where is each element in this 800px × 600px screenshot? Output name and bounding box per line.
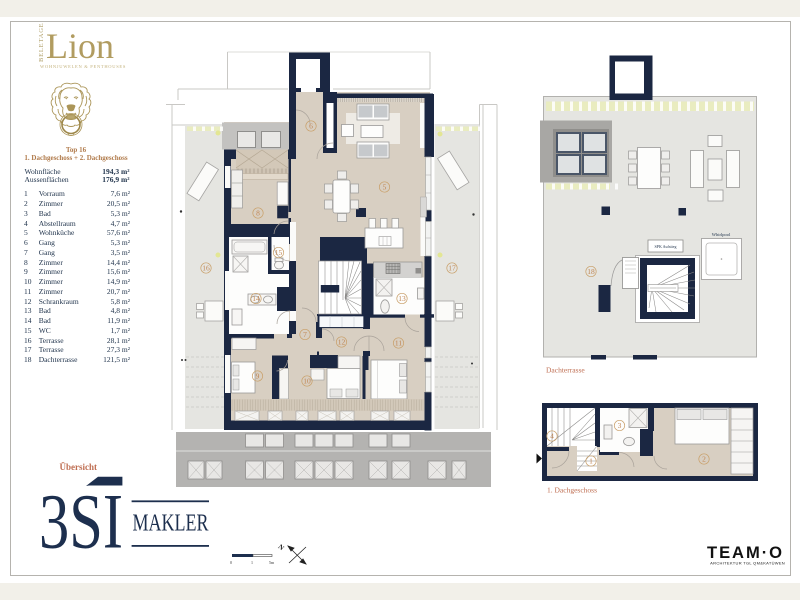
svg-text:3: 3 <box>618 421 622 430</box>
svg-text:14: 14 <box>252 294 260 303</box>
svg-text:6: 6 <box>309 122 313 131</box>
svg-text:1: 1 <box>589 457 593 466</box>
svg-text:0: 0 <box>230 560 232 565</box>
svg-text:2: 2 <box>702 455 706 464</box>
svg-text:1: 1 <box>251 560 253 565</box>
svg-text:12: 12 <box>338 338 346 347</box>
svg-text:13: 13 <box>398 294 406 303</box>
svg-text:16: 16 <box>202 264 210 273</box>
svg-text:10: 10 <box>303 377 311 386</box>
svg-text:3SI: 3SI <box>39 478 123 554</box>
svg-text:17: 17 <box>448 264 456 273</box>
svg-text:5: 5 <box>383 183 387 192</box>
svg-text:TEAM·O: TEAM·O <box>707 543 784 562</box>
svg-text:ARCHITEKTUR TGL QM&KATÜWEN: ARCHITEKTUR TGL QM&KATÜWEN <box>710 561 785 566</box>
svg-text:9: 9 <box>256 372 260 381</box>
svg-text:SPK Aufstieg: SPK Aufstieg <box>655 244 677 249</box>
svg-text:MAKLER: MAKLER <box>133 510 209 537</box>
svg-text:11: 11 <box>395 339 402 348</box>
svg-text:4: 4 <box>550 432 554 441</box>
svg-text:18: 18 <box>587 267 595 276</box>
svg-text:15: 15 <box>275 248 283 257</box>
svg-text:N: N <box>276 543 285 552</box>
svg-text:Whirlpool: Whirlpool <box>712 232 731 237</box>
svg-text:7: 7 <box>303 330 307 339</box>
svg-text:Dachterrasse: Dachterrasse <box>546 366 585 375</box>
svg-text:5m: 5m <box>269 560 275 565</box>
svg-text:1. Dachgeschoss: 1. Dachgeschoss <box>547 486 597 495</box>
svg-text:8: 8 <box>256 209 260 218</box>
